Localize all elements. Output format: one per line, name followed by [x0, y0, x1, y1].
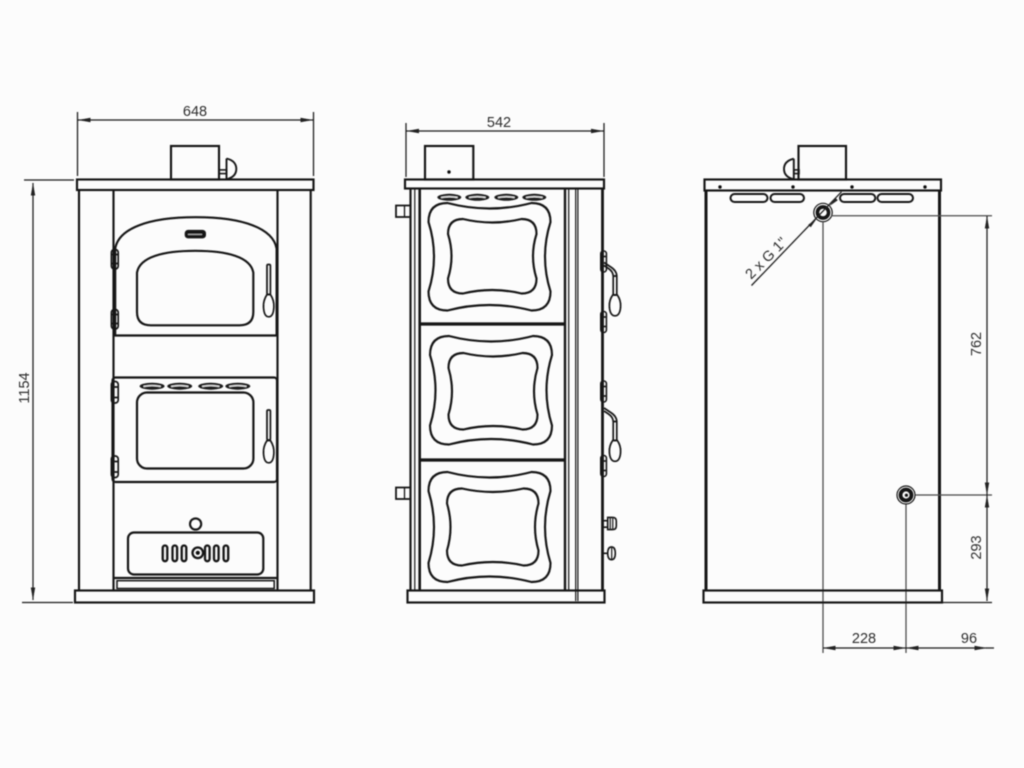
svg-text:228: 228 [852, 631, 876, 647]
svg-text:542: 542 [487, 115, 511, 131]
svg-text:96: 96 [961, 631, 977, 647]
svg-text:648: 648 [183, 104, 207, 120]
svg-text:293: 293 [969, 535, 985, 559]
svg-text:2 x G 1": 2 x G 1" [743, 235, 791, 283]
svg-text:1154: 1154 [17, 372, 33, 403]
svg-text:762: 762 [969, 332, 985, 356]
